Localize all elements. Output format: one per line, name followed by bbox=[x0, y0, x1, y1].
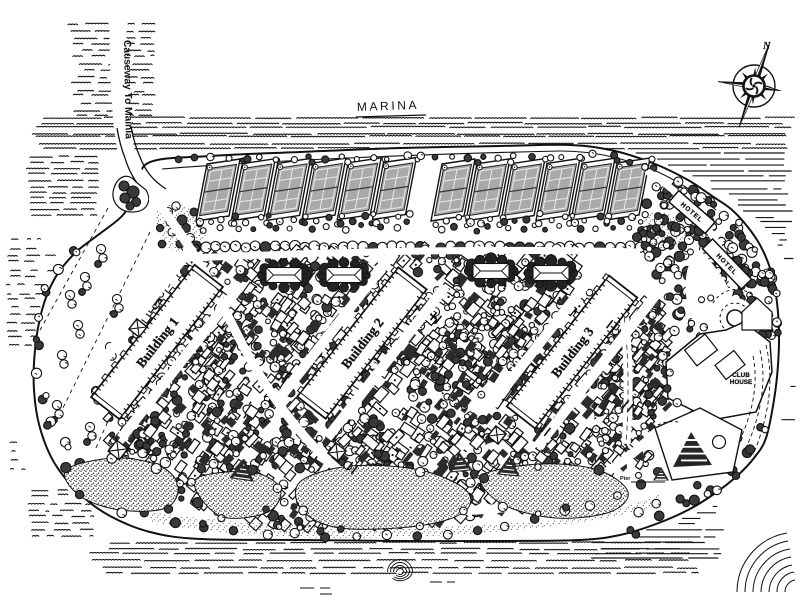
svg-text:N: N bbox=[762, 40, 771, 52]
svg-text:MARINA: MARINA bbox=[357, 98, 420, 114]
svg-text:CLUB: CLUB bbox=[732, 372, 750, 379]
svg-text:Causeway To Mainla: Causeway To Mainla bbox=[121, 40, 134, 139]
svg-text:HOUSE: HOUSE bbox=[730, 379, 752, 386]
svg-text:Pier: Pier bbox=[620, 476, 631, 482]
